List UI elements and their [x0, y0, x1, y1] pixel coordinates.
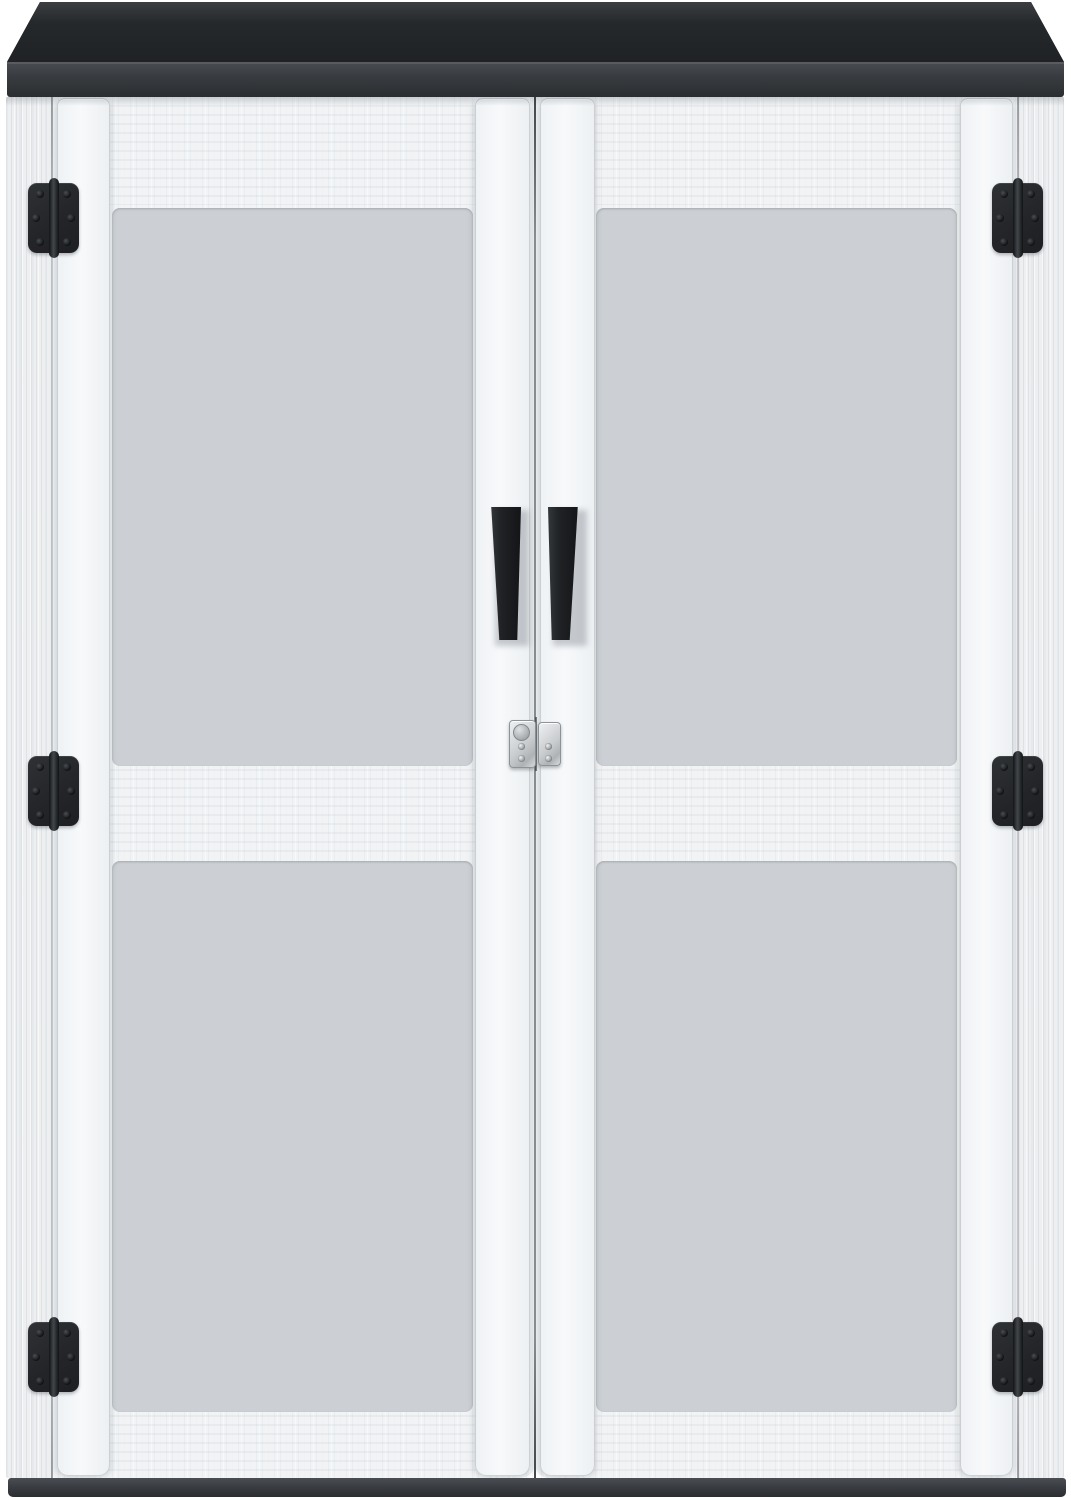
roof-lid — [7, 2, 1064, 62]
door-right — [535, 97, 1018, 1478]
latch-knob — [513, 724, 530, 741]
seam-center-doors — [534, 97, 536, 1478]
base-strip — [8, 1478, 1066, 1497]
side-panel-left — [6, 97, 52, 1478]
door-left-bottom-rail — [58, 1415, 529, 1471]
door-right-hinge-stile — [960, 98, 1013, 1476]
latch-screw — [545, 755, 552, 762]
storage-cabinet-photo — [0, 0, 1071, 1500]
door-right-lower-panel — [596, 861, 957, 1412]
door-left-hinge-stile — [57, 98, 110, 1476]
door-right-top-rail — [541, 105, 1012, 205]
roof-fascia — [7, 62, 1064, 97]
door-right-bottom-rail — [541, 1415, 1012, 1471]
door-left-center-stile — [475, 98, 530, 1476]
door-left-middle-rail — [58, 769, 529, 859]
door-right-center-stile — [540, 98, 595, 1476]
latch-screw — [545, 743, 552, 750]
cabinet-body — [6, 97, 1064, 1478]
seam-right-door-frame — [1017, 97, 1019, 1478]
door-right-middle-rail — [541, 769, 1012, 859]
door-latch — [507, 717, 564, 771]
latch-screw — [518, 743, 525, 750]
seam-left-door-frame — [51, 97, 53, 1478]
door-left-lower-panel — [112, 861, 473, 1412]
door-left-top-rail — [58, 105, 529, 205]
door-left — [52, 97, 535, 1478]
side-panel-right — [1018, 97, 1064, 1478]
door-right-upper-panel — [596, 208, 957, 766]
door-left-upper-panel — [112, 208, 473, 766]
roof-plank-row — [7, 2, 1064, 62]
latch-screw — [518, 755, 525, 762]
